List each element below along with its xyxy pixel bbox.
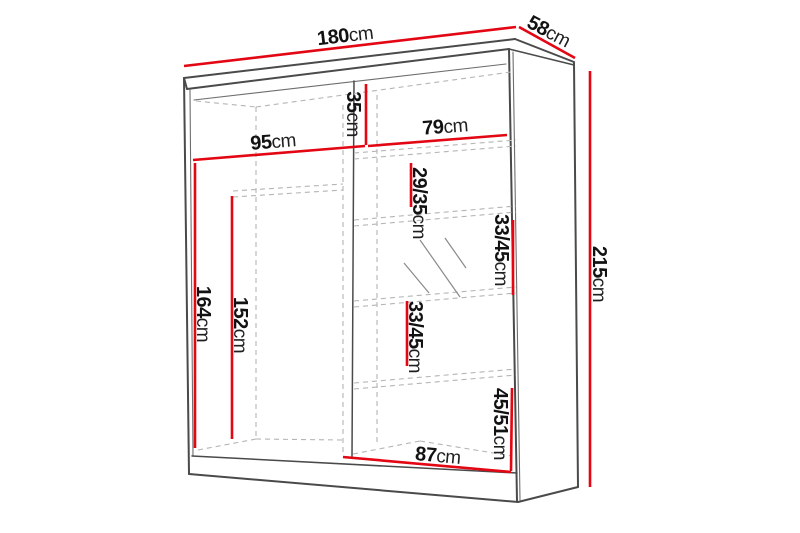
diagram-canvas: 180cm 58cm 215cm 95cm 35cm 79cm 29/35cm … [0, 0, 800, 533]
shelf-4-back-edge [354, 375, 516, 389]
label-shelf-space-33-45-a: 33/45cm [490, 214, 512, 286]
shelf-4-front-edge [354, 369, 516, 383]
label-bottom-right-width-87: 87cm [414, 443, 461, 469]
mirror-stroke-1 [420, 240, 460, 297]
hanging-rod-line-1 [233, 184, 343, 191]
cabinet-outline [184, 39, 578, 502]
ceiling-left-depth-line [196, 101, 256, 107]
label-height-215: 215cm [588, 246, 610, 302]
mirror-hatch-lines [404, 238, 466, 297]
mirror-stroke-2 [445, 238, 466, 268]
front-bottom-edge [189, 474, 518, 502]
floor-right-depth-line [353, 441, 420, 454]
wardrobe-dimension-diagram: 180cm 58cm 215cm 95cm 35cm 79cm 29/35cm … [0, 0, 800, 533]
shelf-3-front-edge [354, 287, 516, 301]
label-top-shelf-height-35: 35cm [342, 91, 364, 137]
floor-back-edge-left [256, 439, 343, 440]
label-top-left-width-95: 95cm [249, 129, 296, 155]
dimension-lines [184, 27, 590, 487]
left-inner-edge [190, 90, 193, 456]
floor-left-depth-line [198, 439, 256, 450]
mirror-stroke-3 [404, 263, 429, 293]
label-shelf-space-33-45-b: 33/45cm [404, 301, 426, 373]
label-door-height-164: 164cm [192, 286, 214, 342]
shelf-3-back-edge [354, 293, 516, 307]
label-top-right-width-79: 79cm [421, 114, 468, 140]
ceiling-back-edge [256, 72, 511, 107]
center-divider [352, 81, 354, 458]
side-bottom-edge [518, 487, 578, 502]
shelf-1-back-edge [354, 146, 516, 159]
label-shelf-space-29-35: 29/35cm [408, 167, 430, 239]
label-interior-height-152: 152cm [229, 297, 251, 353]
back-right-edge [574, 63, 578, 487]
hanging-rod-line-2 [233, 190, 343, 197]
label-bottom-space-45-51: 45/51cm [489, 388, 511, 460]
left-outer-edge [184, 78, 189, 474]
